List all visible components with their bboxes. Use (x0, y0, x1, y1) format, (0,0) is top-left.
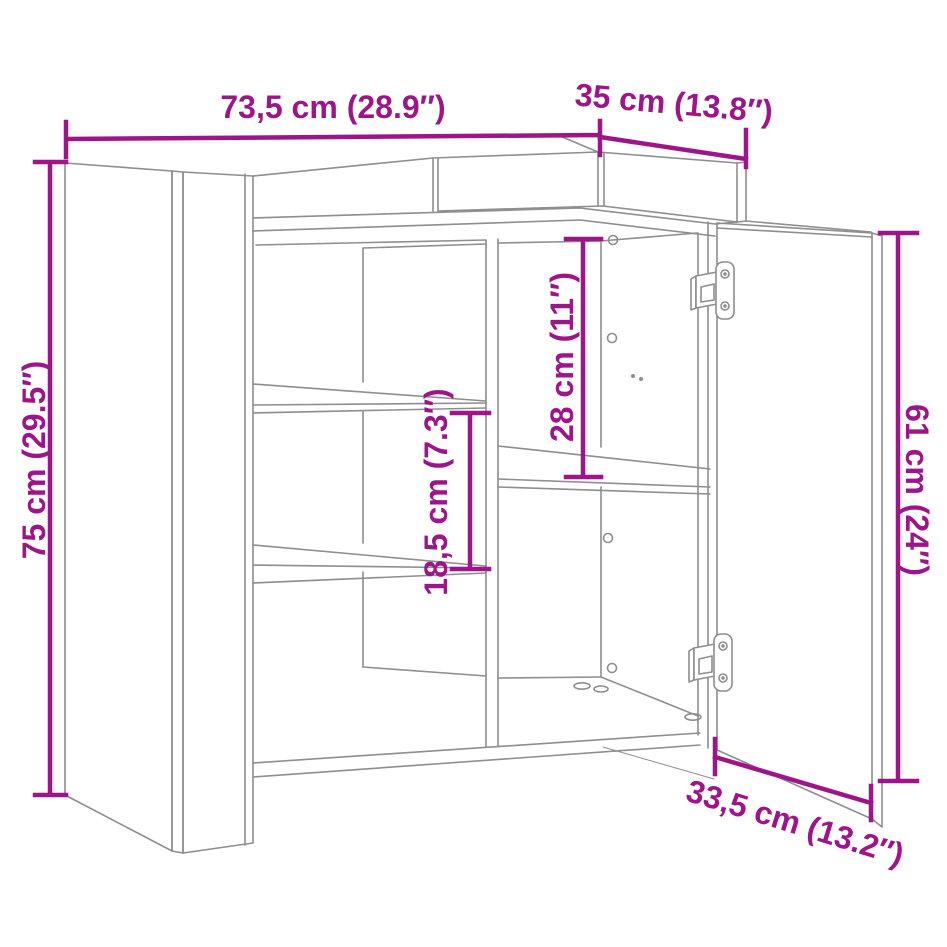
interior-ceiling (256, 233, 697, 248)
dim-overall-height: 75 cm (29.5″) (16, 162, 66, 795)
dim-door-height-label: 61 cm (24″) (899, 404, 935, 576)
left-side-panel (65, 163, 253, 853)
dim-overall-width-label: 73,5 cm (28.9″) (220, 89, 445, 125)
base (253, 667, 714, 779)
cabinet-outline (65, 136, 882, 853)
dim-overall-width-line (66, 121, 600, 157)
dim-overall-height-label: 75 cm (29.5″) (16, 361, 52, 560)
dim-overall-width: 73,5 cm (28.9″) (66, 89, 600, 157)
sideboard-line-drawing: 73,5 cm (28.9″) 35 cm (13.8″) 75 cm (29.… (0, 0, 947, 947)
dimension-diagram: 73,5 cm (28.9″) 35 cm (13.8″) 75 cm (29.… (0, 0, 947, 947)
dim-door-height: 61 cm (24″) (880, 233, 935, 781)
dimension-annotations: 73,5 cm (28.9″) 35 cm (13.8″) 75 cm (29.… (16, 76, 935, 872)
dim-door-width: 33,5 cm (13.2″) (682, 739, 908, 873)
dim-overall-depth-label: 35 cm (13.8″) (573, 76, 774, 129)
top-panel (253, 158, 737, 236)
shelf-right (498, 446, 710, 494)
dim-shelf-spacing-line (452, 413, 489, 569)
dim-upper-compartment: 28 cm (11″) (544, 239, 601, 477)
dim-upper-compartment-label: 28 cm (11″) (544, 272, 580, 442)
door-open (717, 221, 882, 827)
dim-door-width-label: 33,5 cm (13.2″) (682, 772, 908, 872)
hinge-bottom (689, 634, 732, 691)
dim-shelf-spacing-label: 18,5 cm (7.3″) (418, 388, 454, 595)
